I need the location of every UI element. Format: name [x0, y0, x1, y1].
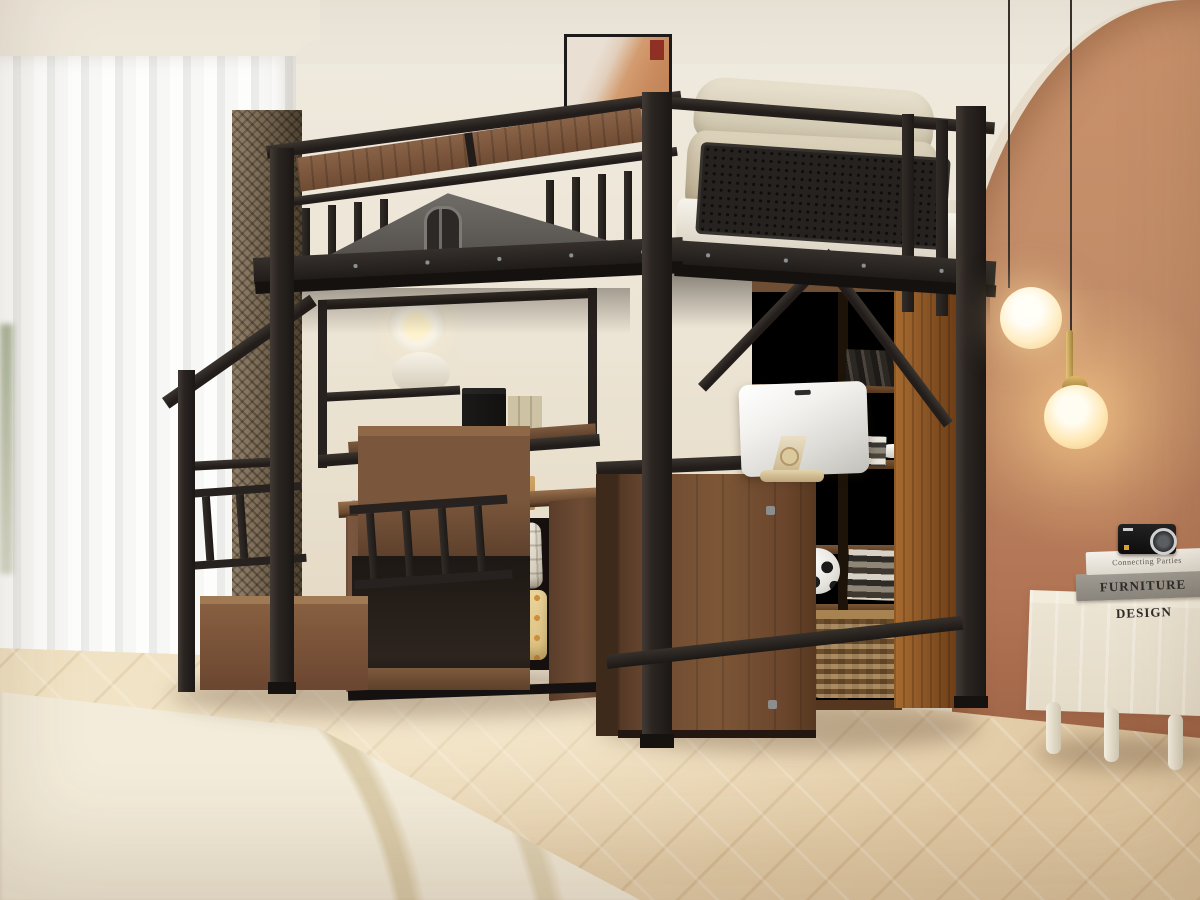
wood-side-panel: [894, 266, 956, 708]
post-foot: [640, 734, 674, 748]
post-foot: [954, 696, 988, 708]
pendant-cord-1: [1008, 0, 1010, 288]
pendant-cord-2: [1070, 0, 1072, 338]
spindle: [236, 494, 248, 558]
sideboard-leg: [1046, 702, 1061, 754]
camera-dot: [1124, 545, 1129, 550]
pedestal-lock-upper: [766, 506, 775, 515]
books-horizontal-stack: [847, 549, 901, 601]
monitor-stand-base: [760, 470, 824, 482]
pendant-rod-2: [1066, 330, 1073, 382]
desk-pedestal-side: [596, 474, 620, 736]
pedestal-lock-lower: [768, 700, 777, 709]
spindle: [474, 505, 487, 571]
pendant-globe-2: [1044, 385, 1108, 449]
compact-camera: [1118, 524, 1176, 554]
stair-railing-panel-2: [349, 495, 512, 590]
guard-spindle: [598, 174, 606, 246]
bed-post-front-left: [270, 148, 294, 694]
pendant-globe-1: [1000, 287, 1062, 349]
camera-badge: [1123, 528, 1133, 531]
cavity-floor: [352, 668, 530, 690]
sideboard-leg: [1104, 708, 1119, 762]
monitor-stand-ring: [780, 447, 799, 466]
bedroom-scene: FURNITURE DESIGN Connecting Parties: [0, 0, 1200, 900]
book-spine-title: FURNITURE DESIGN: [1076, 570, 1200, 629]
underbed-shade-left: [300, 288, 630, 334]
camera-lens: [1150, 528, 1177, 555]
plant-glimpse: [0, 324, 13, 574]
wall-art-red-block: [650, 40, 664, 60]
spindle: [438, 508, 451, 574]
inlay-divider: [464, 132, 477, 167]
post-foot: [268, 682, 296, 694]
stair-newel-post: [178, 370, 195, 692]
spindle: [202, 496, 214, 560]
guard-spindle: [624, 171, 632, 245]
monitor-back: [738, 381, 869, 477]
sideboard-leg: [1168, 714, 1183, 770]
monitor-vent: [795, 390, 811, 396]
spindle: [402, 510, 415, 576]
spindle: [366, 513, 379, 579]
